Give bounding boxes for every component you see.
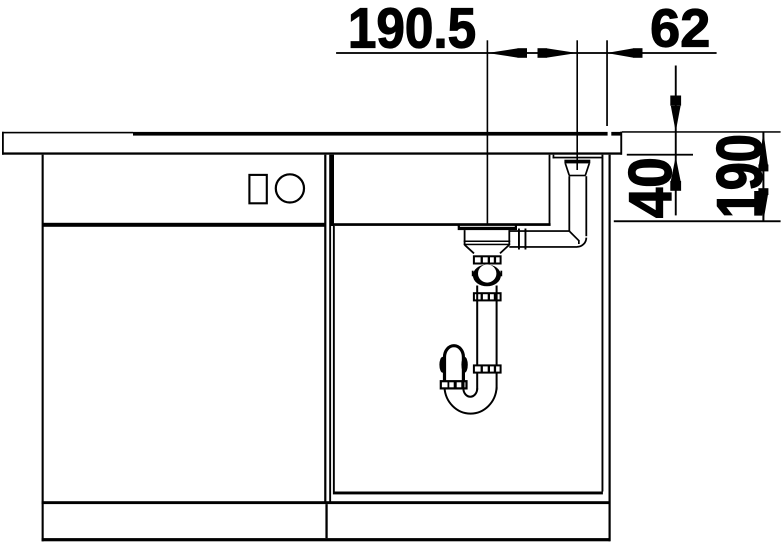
svg-text:190: 190: [705, 134, 776, 218]
svg-text:62: 62: [650, 0, 710, 59]
svg-text:190.5: 190.5: [348, 0, 476, 60]
svg-text:40: 40: [618, 157, 685, 218]
